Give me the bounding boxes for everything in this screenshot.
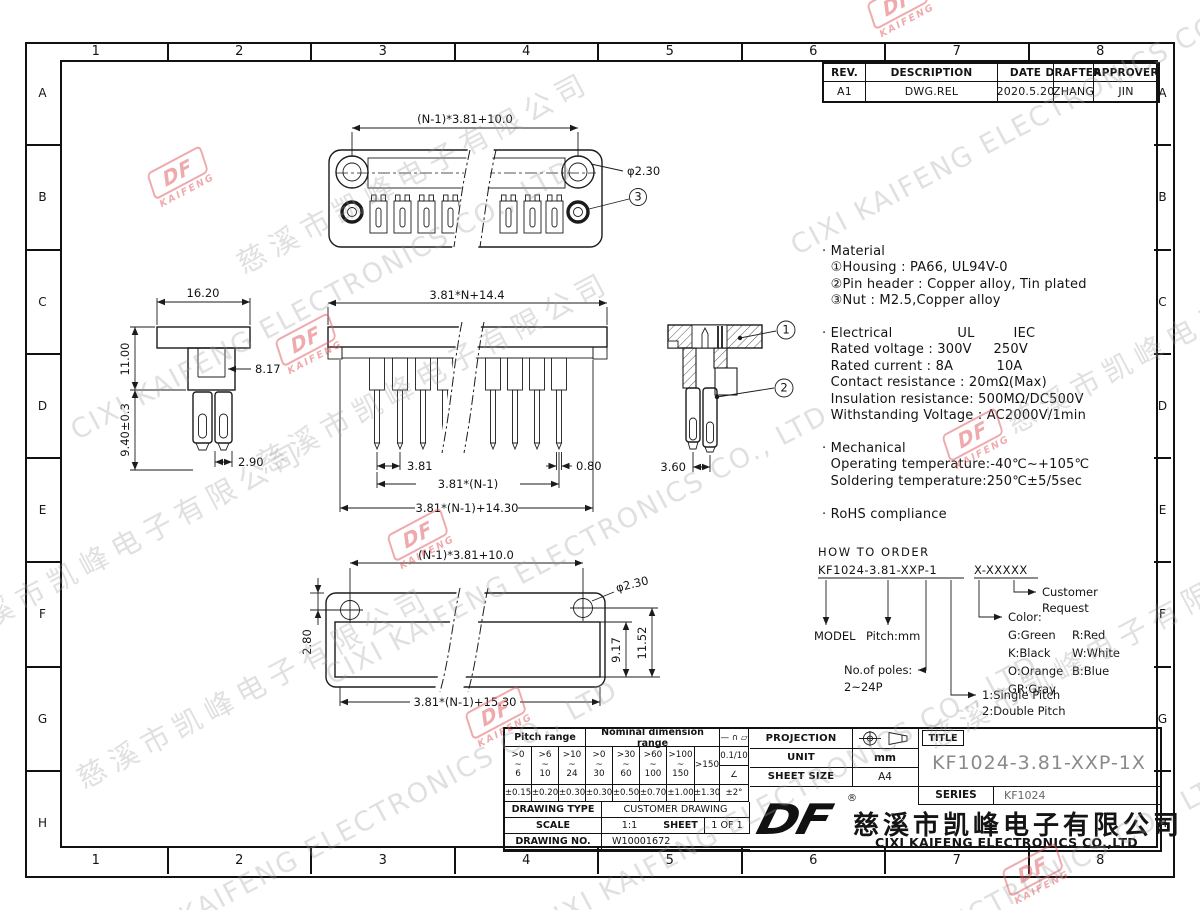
tol-value: ±1.00 [667,785,695,802]
grid-col-label: 7 [886,42,1030,60]
rev-header: DRAFTER [1054,64,1094,82]
order-customer-1: Customer [1042,585,1098,599]
tol-range: >30 ~ 60 [613,747,640,785]
dim-height: 11.00 [118,343,132,376]
pins [193,392,232,450]
front-view-drawing: 3.81*N+14.4 3.81 0.80 3.81*(N-1) 3.81*(N… [320,290,655,530]
company-name-en: CIXI KAIFENG ELECTRONICS CO.,LTD [853,835,1160,850]
dim-inner-height: 9.17 [609,637,623,663]
tol-value: ±0.70 [640,785,667,802]
order-color-option: GR:Gray [1008,682,1056,696]
order-color-option: W:White [1072,646,1120,660]
rev-cell: 2020.5.20 [998,82,1054,101]
drawing-type-value: CUSTOMER DRAWING [602,802,750,818]
drawing-type-label: DRAWING TYPE [505,802,602,818]
pins [686,388,717,452]
angle-icon: ∠ [720,766,748,784]
drawing-title: KF1024-3.81-XXP-1X [918,741,1160,785]
order-pitch-type-2: 2:Double Pitch [982,704,1066,718]
dim-inner: 8.17 [255,362,281,376]
tol-range: >60 ~ 100 [640,747,667,785]
grid-row-label: B [25,146,60,250]
drawing-no-value: W10001672 [602,834,750,850]
grid-row-label: A [25,42,60,146]
dim-pin-length: 9.40±0.3 [118,403,132,457]
dim-edge: 2.80 [300,629,314,655]
drawing-sheet: 慈溪市凯峰电子有限公司 CIXI KAIFENG ELECTRONICS CO.… [0,0,1200,910]
rev-header: REV. [824,64,866,82]
side-view-drawing: 16.20 8.17 11.00 9.40±0.3 2.90 [90,283,325,493]
order-model-label: MODEL [814,629,856,643]
grid-row-label: H [25,772,60,874]
break-lines [452,148,496,249]
order-code-suffix: X-XXXXX [974,563,1028,577]
grid-col-label: 4 [456,42,600,60]
grid-col-label: 8 [1030,42,1172,60]
rev-cell: ZHANG [1054,82,1094,101]
dim-top-width: (N-1)*3.81+10.0 [417,112,513,126]
tol-value: ±0.50 [613,785,640,802]
unit-label: UNIT [750,748,853,768]
tol-value: ±0.30 [586,785,613,802]
drawing-info-table: DRAWING TYPE CUSTOMER DRAWING SCALE 1:1 … [505,802,750,850]
dim-flange-width: 16.20 [187,286,220,300]
rev-cell: A1 [824,82,866,101]
kaifeng-logo-text: KAIFENG [878,2,937,40]
rev-header: APPROVER [1094,64,1158,82]
rev-header: DESCRIPTION [866,64,998,82]
rev-cell: DWG.REL [866,82,998,101]
dim-front-width: 3.81*N+14.4 [429,288,504,302]
scale-value: 1:1 [602,818,657,834]
grid-row-label: B [1154,146,1171,250]
tol-header: Pitch range [505,729,586,747]
tol-ratio: 0.1/10 [720,747,748,766]
revision-table: REV. DESCRIPTION DATE DRAFTER APPROVER A… [822,62,1160,103]
bottom-view-drawing: (N-1)*3.81+10.0 φ2.30 2.80 9.17 11.52 3.… [290,550,690,720]
tol-value: ±2° [720,785,749,802]
dim-total: 3.81*(N-1)+14.30 [416,501,519,515]
spec-notes: · Material ①Housing : PA66, UL94V-0 ②Pin… [822,244,1089,523]
callout-3: 3 [634,190,641,204]
projection-label: PROJECTION [750,729,853,749]
order-title: HOW TO ORDER [818,545,930,559]
dim-pitch: 3.81 [407,459,433,473]
tol-value: ±0.30 [559,785,586,802]
grid-col-label: 2 [169,42,313,60]
housing-outline [157,327,250,390]
tol-range: >0 ~ 30 [586,747,613,785]
series-label: SERIES [918,786,994,805]
tol-range: >0 ~ 6 [505,747,532,785]
tol-value: ±0.20 [532,785,559,802]
order-code-main: KF1024-3.81-XXP-1 [818,563,937,577]
order-poles-label: No.of poles: [844,663,912,677]
dim-pin: 0.80 [576,459,602,473]
order-pitch-label: Pitch:mm [866,629,920,643]
grid-row-label: E [25,459,60,563]
dimensions: 3.60 [660,452,710,474]
sheet-size-value: A4 [852,767,919,787]
dim-pin-width: 2.90 [238,455,264,469]
dim-outer-height: 11.52 [635,627,649,660]
kaifeng-logo-icon: DF [866,0,929,31]
tol-symbols: — ∩ ▱ [720,729,749,747]
grid-col-label: 3 [312,42,456,60]
series-value: KF1024 [994,786,1160,805]
tol-range: >10 ~ 24 [559,747,586,785]
section-view-drawing: 1 2 3.60 [640,300,820,500]
dimensions: (N-1)*3.81+10.0 φ2.30 2.80 9.17 11.52 3.… [300,548,660,709]
grid-row-label: D [1154,355,1171,459]
rev-cell: JIN [1094,82,1158,101]
grid-col-label: 2 [169,846,313,874]
dim-hole-diameter: φ2.30 [614,573,650,595]
drawing-no-label: DRAWING NO. [505,834,602,850]
grid-row-label: F [25,563,60,667]
how-to-order: HOW TO ORDER KF1024-3.81-XXP-1 X-XXXXX M… [814,540,1160,722]
top-view-drawing: (N-1)*3.81+10.0 φ2.30 3 [278,105,708,257]
dim-hole-diameter: φ2.30 [627,164,660,178]
tol-value: ±1.30 [695,785,720,802]
sheet-size-label: SHEET SIZE [750,767,853,787]
order-arrows [826,580,1036,695]
grid-row-label: G [25,668,60,772]
unit-value: mm [852,748,919,768]
grid-col-label: 5 [599,42,743,60]
grid-col-label: 3 [312,846,456,874]
left-ruler: A B C D E F G H [25,42,60,874]
grid-col-label: 6 [743,42,887,60]
tol-range: >6 ~ 10 [532,747,559,785]
dimensions: (N-1)*3.81+10.0 φ2.30 3 [352,112,660,209]
order-color-option: R:Red [1072,628,1105,642]
dim-bottom-width: (N-1)*3.81+10.0 [418,548,514,562]
dim-bottom-total: 3.81*(N-1)+15.30 [414,695,517,709]
title-block: Pitch range Nominal dimension range — ∩ … [503,727,1162,852]
break-lines [434,586,488,694]
dim-pin-span: 3.60 [660,460,686,474]
callout-2: 2 [780,381,787,395]
top-ruler: 1 2 3 4 5 6 7 8 [25,42,1171,60]
tol-range: >150 [695,747,720,785]
housing-section [668,325,762,395]
order-color-option: O:Orange [1008,664,1063,678]
tol-header: Nominal dimension range [586,729,720,747]
company-logo: DF [752,795,836,844]
order-customer-2: Request [1042,601,1089,615]
projection-symbol-cell [852,729,919,749]
first-angle-projection-icon [855,730,915,747]
break-lines [438,320,484,455]
grid-row-label: D [25,355,60,459]
order-color-option: B:Blue [1072,664,1109,678]
tol-range: >100 ~ 150 [667,747,695,785]
order-color-option: G:Green [1008,628,1056,642]
order-color-option: K:Black [1008,646,1051,660]
grid-row-label: C [25,251,60,355]
grid-row-label: C [1154,251,1171,355]
scale-label: SCALE [505,818,602,834]
callout-1: 1 [782,323,789,337]
sheet-value: 1 OF 1 [705,818,750,834]
dim-span: 3.81*(N-1) [438,477,498,491]
registered-mark-icon: ® [847,793,857,804]
tol-value: ±0.15 [505,785,532,802]
tolerance-table: Pitch range Nominal dimension range — ∩ … [505,729,749,802]
order-poles-range: 2~24P [844,680,883,694]
kaifeng-stamp: DF KAIFENG [864,0,937,40]
order-color-label: Color: [1008,610,1042,624]
tol-angle-cell: 0.1/10 ∠ [720,747,749,785]
sheet-label: SHEET [657,818,705,834]
